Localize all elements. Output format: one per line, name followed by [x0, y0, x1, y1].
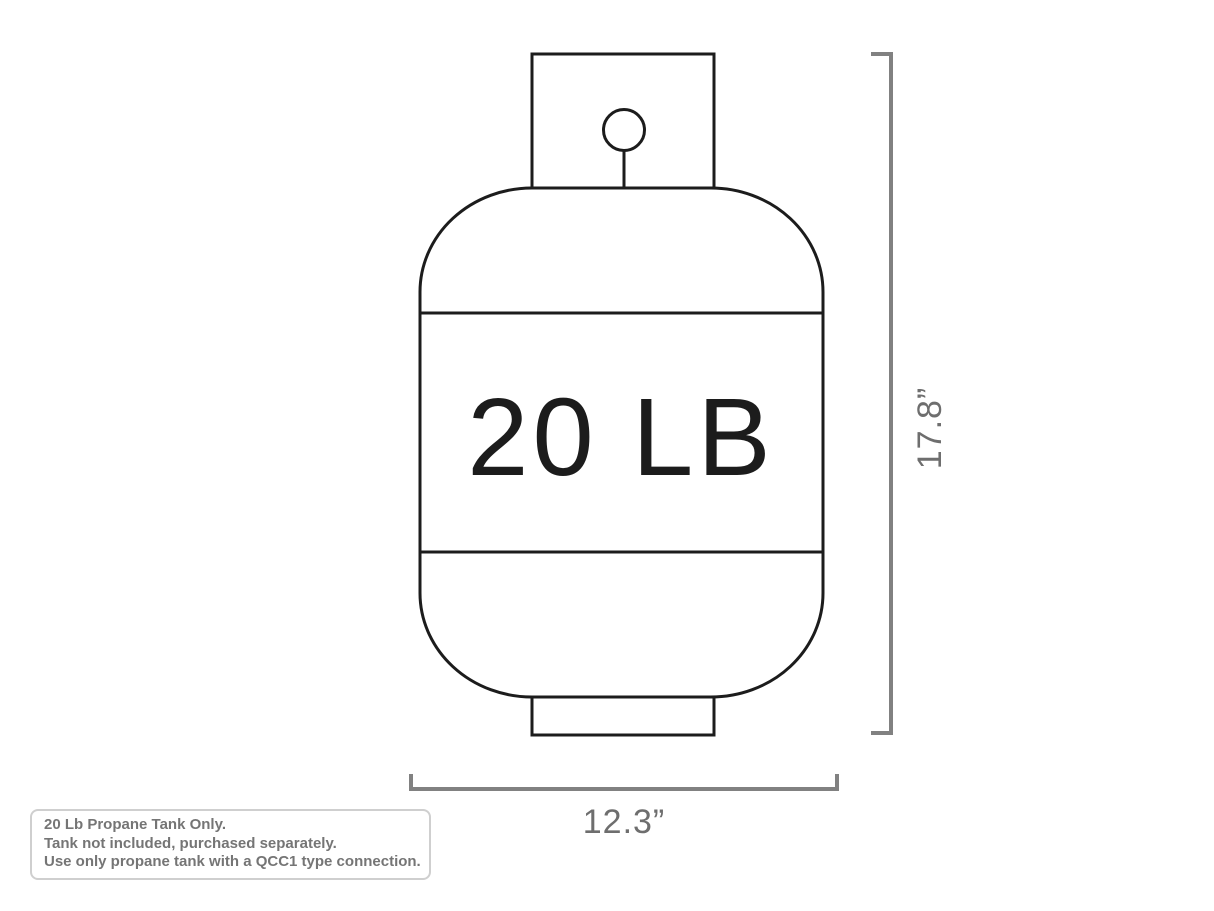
- height-dimension-line: [871, 54, 891, 733]
- valve-knob-icon: [604, 110, 645, 151]
- height-dimension-label: 17.8”: [911, 387, 949, 470]
- width-dimension-line: [411, 774, 837, 789]
- propane-tank-diagram: 20 LB 17.8” 12.3”: [0, 0, 1214, 911]
- note-line-2: Tank not included, purchased separately.: [44, 835, 417, 854]
- tank-drawing: 20 LB: [420, 54, 823, 735]
- width-dimension-label: 12.3”: [583, 803, 666, 841]
- tank-capacity-label: 20 LB: [467, 376, 774, 499]
- note-line-1: 20 Lb Propane Tank Only.: [44, 816, 417, 835]
- diagram-canvas: 20 LB 17.8” 12.3” 20 Lb Propane Tank Onl…: [0, 0, 1214, 911]
- note-line-3: Use only propane tank with a QCC1 type c…: [44, 853, 417, 872]
- height-dimension: 17.8”: [871, 54, 949, 733]
- note-box: 20 Lb Propane Tank Only. Tank not includ…: [30, 809, 431, 880]
- tank-foot-ring: [532, 697, 714, 735]
- width-dimension: 12.3”: [411, 774, 837, 841]
